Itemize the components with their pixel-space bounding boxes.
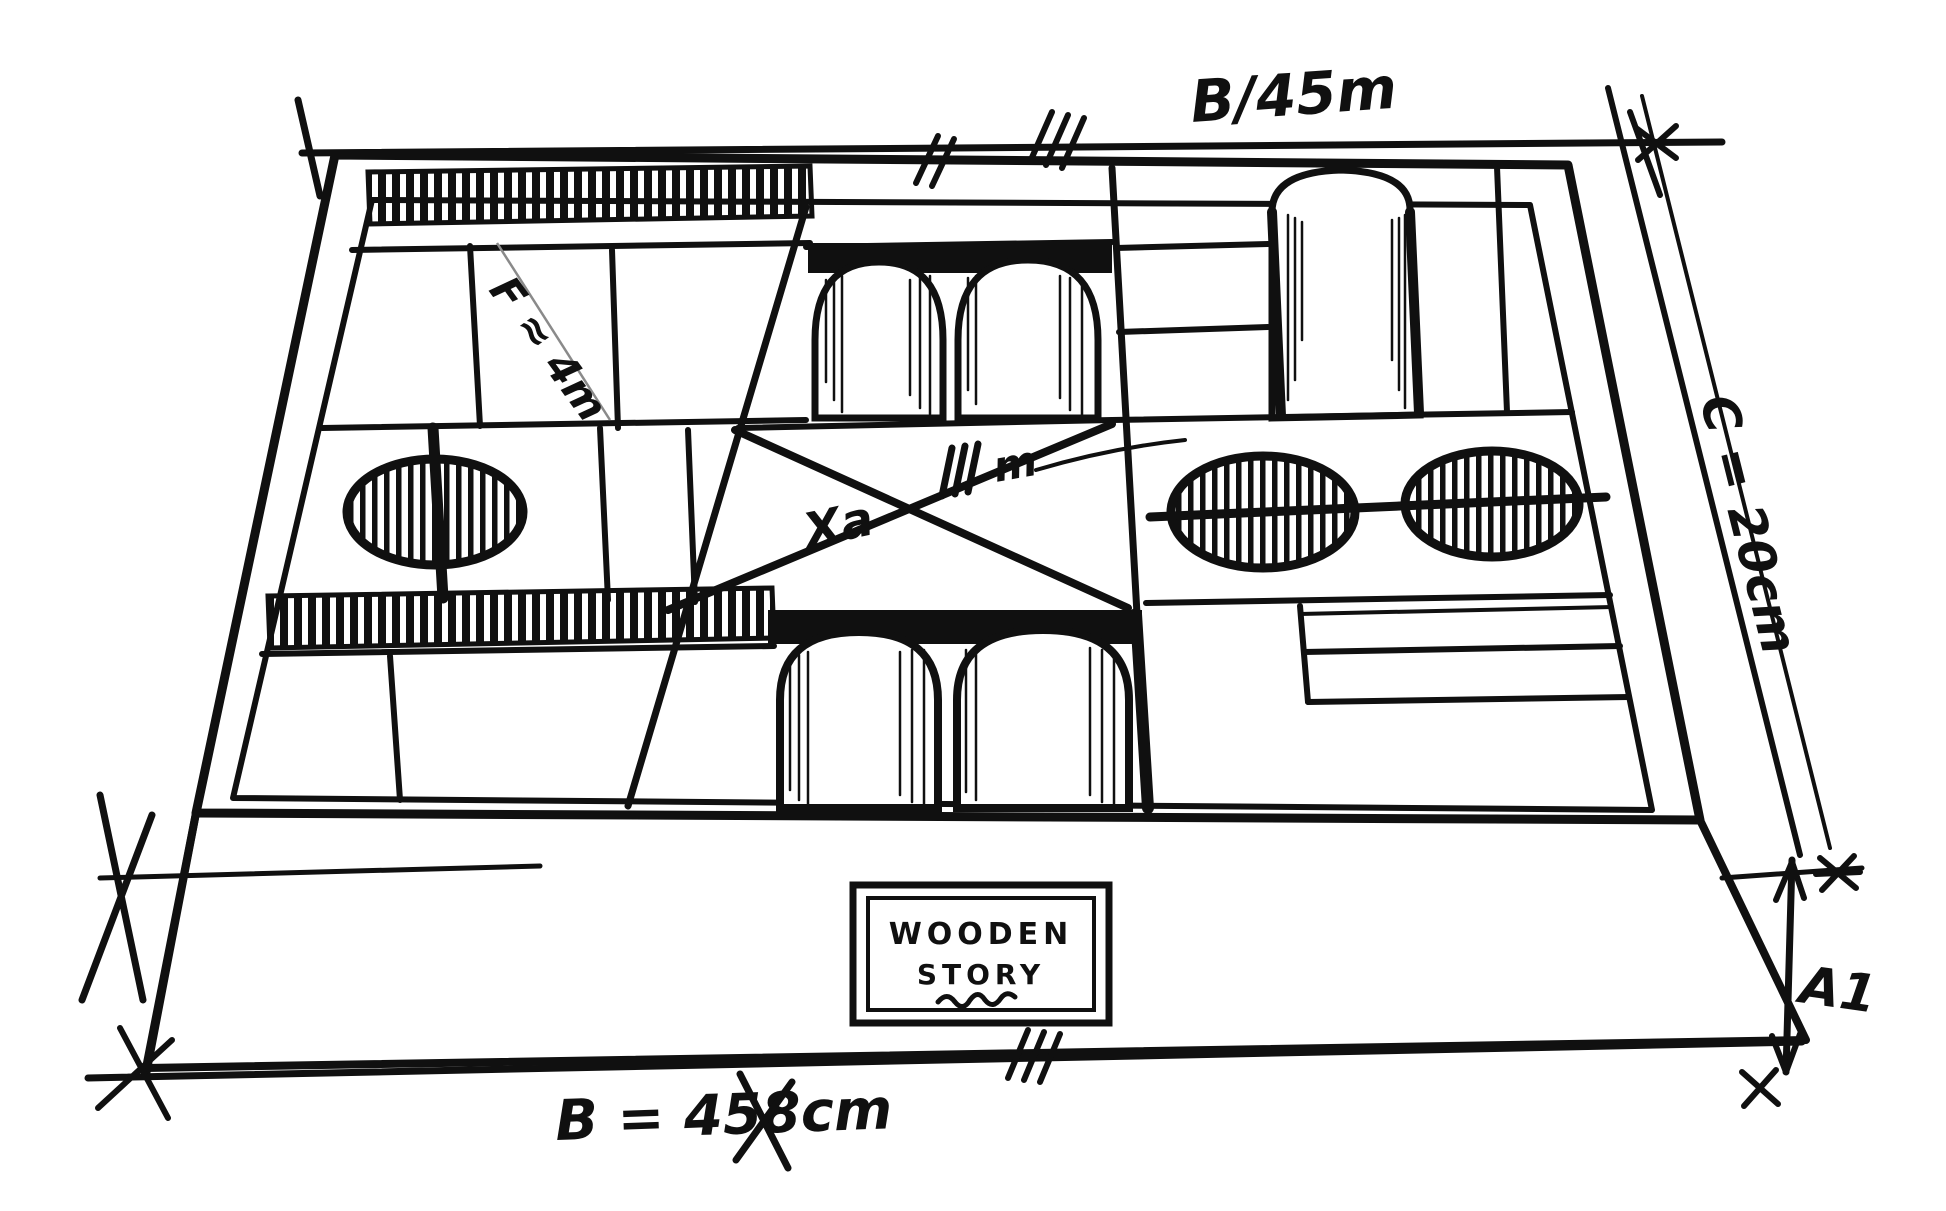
center-column-blocks: [628, 168, 1185, 810]
row-line: [1116, 244, 1268, 248]
end-cross: [82, 795, 152, 1000]
hatched-wheel-block: [1405, 451, 1579, 557]
center-tick-label: m: [989, 436, 1041, 492]
row-line: [352, 243, 810, 250]
diagonal-detail-label: F ≈ 4m: [480, 267, 617, 430]
brand-line1: WOODEN: [889, 917, 1074, 952]
extension-line: [100, 866, 540, 878]
plank-strip-top: [368, 166, 812, 224]
dimension-line: [302, 142, 1722, 153]
hatched-wheel-block: [1171, 456, 1355, 568]
center-block-label: Xa: [796, 491, 878, 561]
dimension-front-height: A1: [1722, 856, 1880, 1106]
blocks-box-sketch: WOODEN STORY B/45m C = 20cm A1 B = 458cm: [0, 0, 1946, 1211]
asterisk-mark: [1742, 1070, 1778, 1106]
row-line-sketch: [1300, 607, 1612, 614]
cell-divider: [470, 246, 480, 426]
plank-line: [1304, 646, 1620, 652]
asterisk-mark: [1816, 856, 1860, 890]
row-line: [1119, 327, 1268, 332]
front-height-label: A1: [1792, 955, 1880, 1026]
sketch-page: WOODEN STORY B/45m C = 20cm A1 B = 458cm: [0, 0, 1946, 1211]
bottom-width-label: B = 458cm: [554, 1077, 893, 1154]
hatched-ellipse-block: [347, 459, 523, 565]
x-cross-diagonal: [735, 430, 1128, 608]
top-width-label: B/45m: [1188, 54, 1399, 136]
triple-hash-mark: [1008, 1030, 1060, 1082]
brand-plaque: WOODEN STORY: [853, 885, 1109, 1023]
dimension-side-depth: C = 20cm: [1608, 88, 1830, 855]
cell-divider: [390, 656, 400, 800]
side-depth-label: C = 20cm: [1688, 389, 1808, 660]
dimension-line: [88, 1042, 1802, 1078]
left-column-blocks: [262, 166, 812, 800]
cell-divider: [600, 428, 608, 600]
row-line: [1112, 412, 1572, 420]
arch-block: [958, 260, 1098, 418]
plank-line: [1308, 697, 1629, 702]
end-tick: [298, 100, 320, 196]
row-line: [1146, 595, 1610, 603]
brand-line2: STORY: [917, 958, 1045, 991]
arch-block: [780, 632, 938, 808]
right-column-blocks: [1112, 167, 1629, 702]
heavy-edge: [1136, 614, 1148, 808]
